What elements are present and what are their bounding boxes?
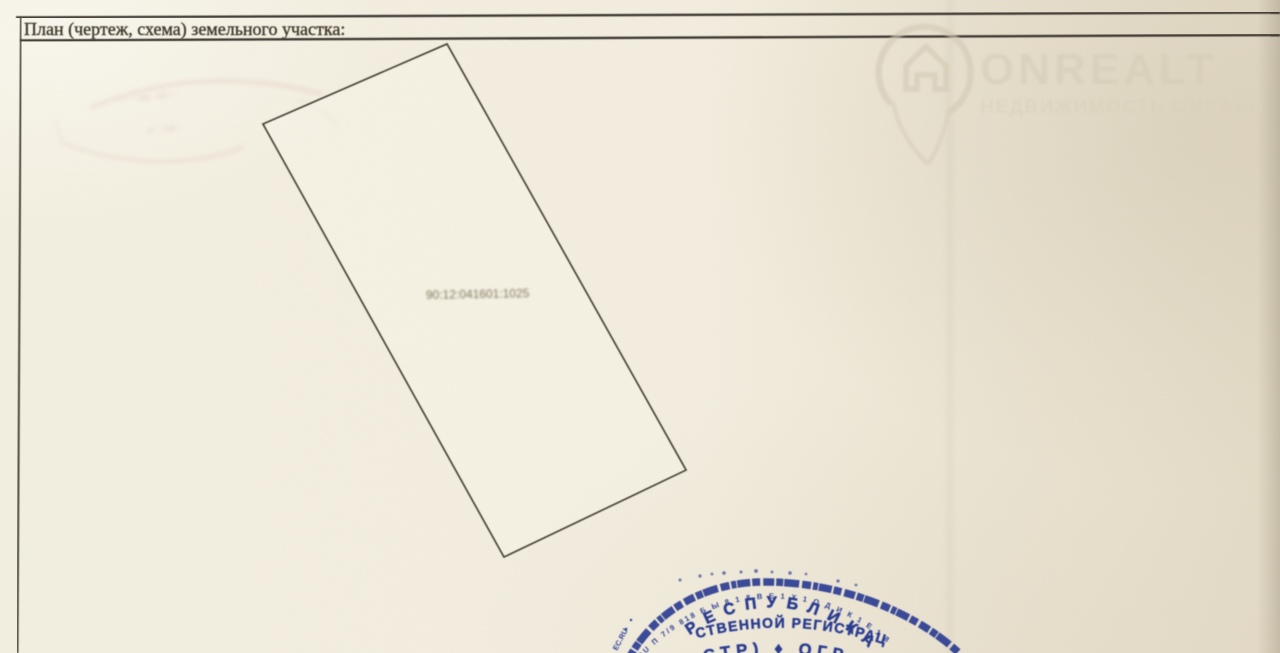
svg-text:90:12:041601:1025: 90:12:041601:1025 [426,286,530,302]
svg-text:НЕДВИЖИМОСТЬ ОНЛАЙН: НЕДВИЖИМОСТЬ ОНЛАЙН [980,96,1264,118]
svg-text:План (чертеж, схема) земельног: План (чертеж, схема) земельного участка: [24,19,345,40]
svg-text:ONREALT: ONREALT [980,45,1217,94]
